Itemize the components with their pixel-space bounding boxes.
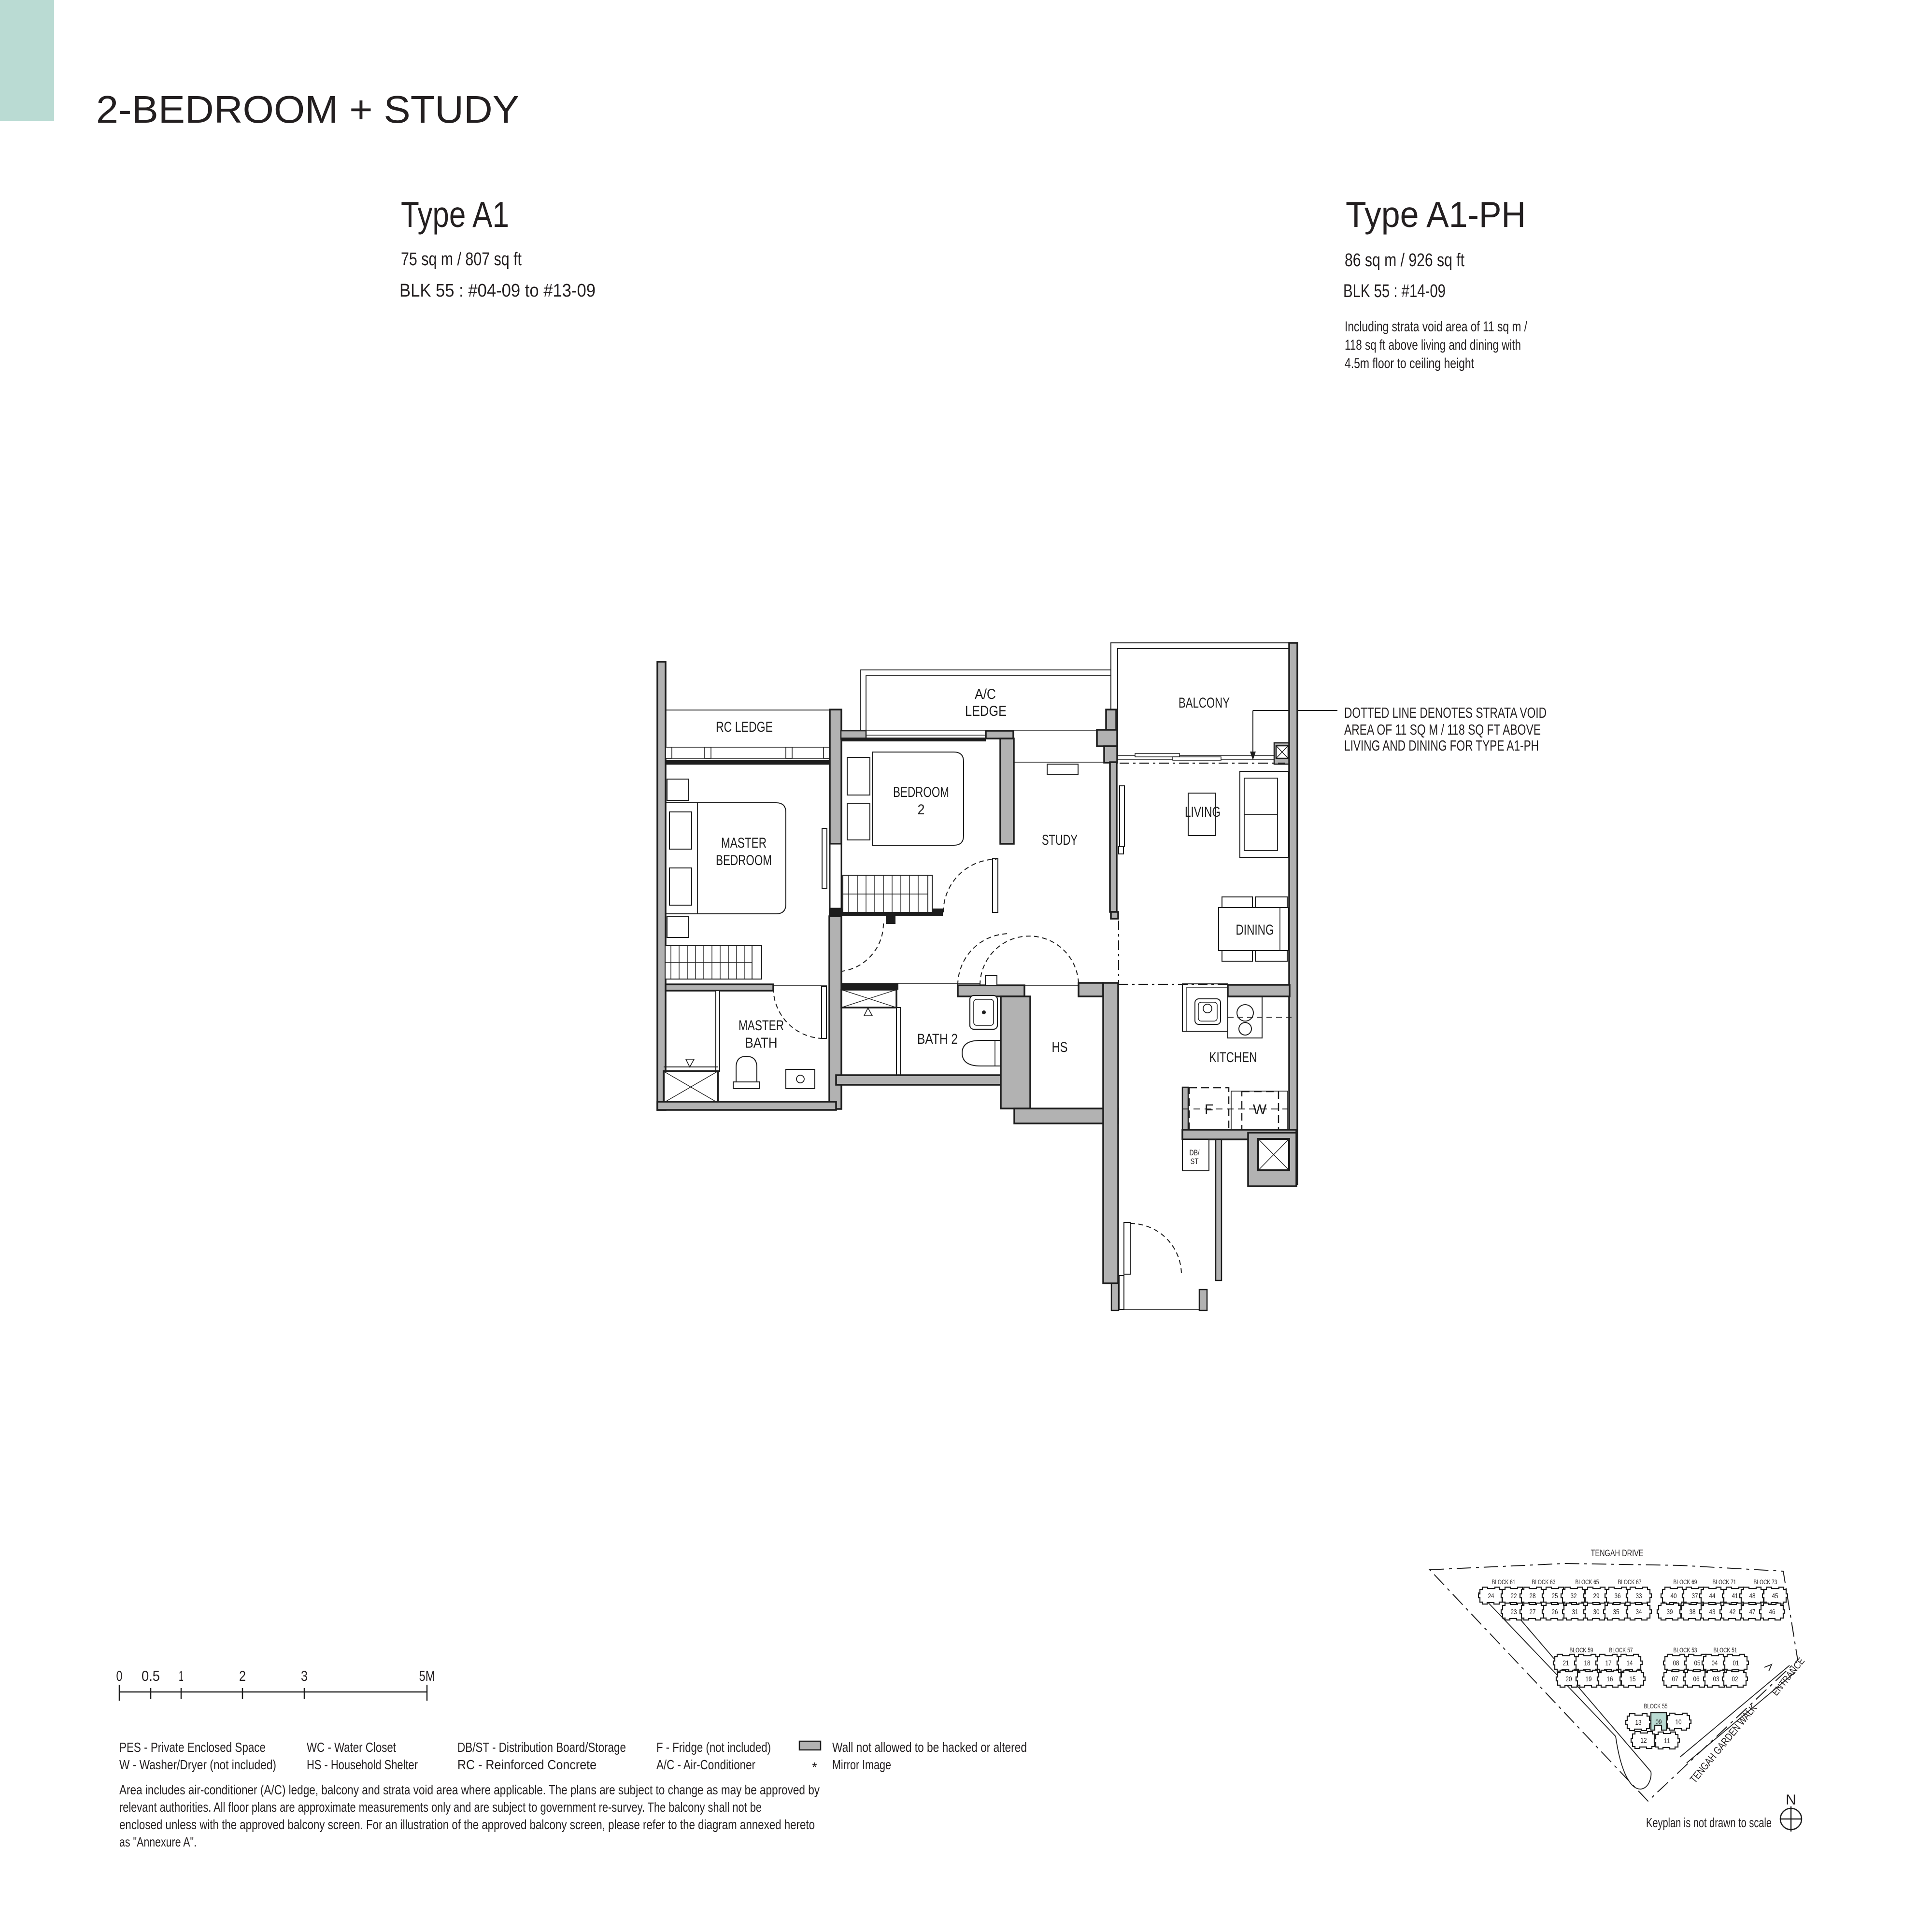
- svg-text:04: 04: [1712, 1659, 1718, 1667]
- svg-text:33: 33: [1636, 1592, 1642, 1600]
- svg-text:BATH: BATH: [745, 1035, 778, 1051]
- svg-text:21: 21: [1563, 1659, 1569, 1667]
- svg-text:75 sq m / 807 sq ft: 75 sq m / 807 sq ft: [401, 249, 522, 270]
- svg-text:as "Annexure A".: as "Annexure A".: [119, 1834, 197, 1849]
- svg-text:18: 18: [1584, 1659, 1591, 1667]
- svg-text:HS - Household Shelter: HS - Household Shelter: [307, 1757, 418, 1772]
- svg-text:PES - Private Enclosed Space: PES - Private Enclosed Space: [119, 1740, 266, 1755]
- svg-text:MASTER: MASTER: [721, 835, 767, 851]
- svg-text:08: 08: [1673, 1659, 1679, 1667]
- svg-text:27: 27: [1530, 1608, 1536, 1616]
- svg-text:42: 42: [1730, 1608, 1736, 1616]
- svg-text:40: 40: [1671, 1592, 1677, 1600]
- svg-text:F: F: [1205, 1102, 1213, 1118]
- svg-text:A/C - Air-Conditioner: A/C - Air-Conditioner: [656, 1757, 755, 1772]
- svg-text:48: 48: [1749, 1592, 1756, 1600]
- svg-text:10: 10: [1676, 1718, 1682, 1726]
- svg-text:BALCONY: BALCONY: [1179, 695, 1230, 711]
- svg-text:45: 45: [1772, 1592, 1778, 1600]
- svg-text:W: W: [1253, 1102, 1267, 1118]
- svg-text:BLOCK 59: BLOCK 59: [1570, 1646, 1593, 1654]
- svg-text:44: 44: [1709, 1592, 1716, 1600]
- svg-text:enclosed unless with the appro: enclosed unless with the approved balcon…: [119, 1817, 815, 1832]
- svg-text:LIVING: LIVING: [1185, 804, 1221, 820]
- svg-text:BLOCK 71: BLOCK 71: [1713, 1578, 1736, 1586]
- svg-text:TENGAH GARDEN WALK: TENGAH GARDEN WALK: [1688, 1702, 1760, 1785]
- svg-text:22: 22: [1511, 1592, 1517, 1600]
- svg-text:2: 2: [239, 1668, 246, 1684]
- svg-text:BLOCK 53: BLOCK 53: [1674, 1646, 1697, 1654]
- svg-text:32: 32: [1571, 1592, 1577, 1600]
- svg-text:F - Fridge (not included): F - Fridge (not included): [656, 1740, 771, 1755]
- svg-text:4.5m floor to ceiling height: 4.5m floor to ceiling height: [1345, 355, 1475, 371]
- svg-text:BLOCK 55: BLOCK 55: [1644, 1702, 1668, 1710]
- svg-text:BEDROOM: BEDROOM: [716, 852, 772, 868]
- svg-text:KITCHEN: KITCHEN: [1209, 1050, 1257, 1065]
- svg-text:Type A1: Type A1: [401, 194, 509, 235]
- svg-text:Type A1-PH: Type A1-PH: [1346, 194, 1526, 235]
- svg-text:BLK 55 : #14-09: BLK 55 : #14-09: [1343, 281, 1446, 301]
- svg-text:BLOCK 63: BLOCK 63: [1532, 1578, 1556, 1586]
- svg-text:06: 06: [1693, 1675, 1700, 1683]
- svg-text:46: 46: [1769, 1608, 1776, 1616]
- svg-text:Including strata void area of: Including strata void area of 11 sq m /: [1345, 319, 1528, 335]
- svg-text:BEDROOM: BEDROOM: [893, 784, 949, 800]
- svg-text:0.5: 0.5: [142, 1668, 160, 1684]
- svg-text:16: 16: [1607, 1675, 1613, 1683]
- svg-text:17: 17: [1605, 1659, 1612, 1667]
- svg-text:BLOCK 57: BLOCK 57: [1609, 1646, 1633, 1654]
- svg-text:29: 29: [1593, 1592, 1600, 1600]
- svg-text:DOTTED LINE DENOTES STRATA VOI: DOTTED LINE DENOTES STRATA VOID: [1344, 704, 1547, 721]
- svg-text:30: 30: [1593, 1608, 1600, 1616]
- svg-text:*: *: [812, 1760, 817, 1775]
- svg-text:HS: HS: [1052, 1039, 1068, 1055]
- svg-text:W - Washer/Dryer (not included: W - Washer/Dryer (not included): [119, 1757, 276, 1772]
- svg-text:2-BEDROOM + STUDY: 2-BEDROOM + STUDY: [96, 88, 519, 131]
- svg-text:LIVING AND DINING FOR TYPE A1-: LIVING AND DINING FOR TYPE A1-PH: [1344, 737, 1539, 754]
- svg-text:31: 31: [1572, 1608, 1578, 1616]
- svg-text:Area includes air-conditioner: Area includes air-conditioner (A/C) ledg…: [119, 1782, 820, 1797]
- svg-text:BLOCK 67: BLOCK 67: [1618, 1578, 1642, 1586]
- svg-text:AREA OF 11 SQ M / 118 SQ FT AB: AREA OF 11 SQ M / 118 SQ FT ABOVE: [1344, 721, 1541, 738]
- svg-text:BATH 2: BATH 2: [917, 1031, 958, 1047]
- svg-text:0: 0: [116, 1668, 123, 1684]
- svg-text:RC LEDGE: RC LEDGE: [716, 719, 773, 735]
- svg-text:ST: ST: [1191, 1157, 1199, 1166]
- svg-text:LEDGE: LEDGE: [965, 703, 1007, 719]
- svg-text:28: 28: [1530, 1592, 1536, 1600]
- svg-text:1: 1: [179, 1668, 184, 1684]
- svg-text:WC - Water Closet: WC - Water Closet: [307, 1740, 396, 1755]
- svg-text:Mirror Image: Mirror Image: [832, 1757, 891, 1772]
- svg-text:12: 12: [1641, 1736, 1647, 1745]
- svg-text:TENGAH DRIVE: TENGAH DRIVE: [1591, 1548, 1644, 1559]
- svg-text:34: 34: [1636, 1608, 1642, 1616]
- svg-text:BLOCK 65: BLOCK 65: [1576, 1578, 1599, 1586]
- svg-text:35: 35: [1613, 1608, 1619, 1616]
- svg-text:DINING: DINING: [1236, 922, 1274, 938]
- svg-text:86 sq m / 926 sq ft: 86 sq m / 926 sq ft: [1345, 250, 1464, 270]
- svg-text:A/C: A/C: [975, 686, 996, 702]
- svg-text:DB/: DB/: [1190, 1148, 1200, 1157]
- svg-text:24: 24: [1488, 1592, 1494, 1600]
- svg-text:25: 25: [1552, 1592, 1558, 1600]
- svg-text:13: 13: [1635, 1719, 1642, 1727]
- svg-text:2: 2: [918, 802, 925, 818]
- svg-text:STUDY: STUDY: [1042, 832, 1078, 848]
- svg-text:BLOCK 51: BLOCK 51: [1714, 1646, 1737, 1654]
- svg-text:01: 01: [1733, 1659, 1739, 1667]
- svg-text:19: 19: [1586, 1675, 1592, 1683]
- svg-text:38: 38: [1690, 1608, 1696, 1616]
- svg-text:3: 3: [301, 1668, 308, 1684]
- svg-text:BLK 55 : #04-09 to #13-09: BLK 55 : #04-09 to #13-09: [399, 281, 596, 301]
- svg-text:Wall not allowed to be hacked: Wall not allowed to be hacked or altered: [832, 1740, 1027, 1755]
- svg-text:20: 20: [1566, 1675, 1572, 1683]
- svg-text:41: 41: [1732, 1592, 1738, 1600]
- svg-text:118 sq ft above living and din: 118 sq ft above living and dining with: [1345, 337, 1521, 353]
- svg-text:DB/ST - Distribution Board/Sto: DB/ST - Distribution Board/Storage: [457, 1740, 626, 1755]
- svg-text:47: 47: [1749, 1608, 1756, 1616]
- svg-text:07: 07: [1672, 1675, 1678, 1683]
- svg-text:5M: 5M: [419, 1668, 435, 1684]
- svg-text:RC - Reinforced Concrete: RC - Reinforced Concrete: [457, 1757, 597, 1772]
- svg-text:37: 37: [1692, 1592, 1698, 1600]
- svg-text:43: 43: [1709, 1608, 1716, 1616]
- svg-text:36: 36: [1615, 1592, 1621, 1600]
- svg-text:11: 11: [1664, 1737, 1670, 1745]
- svg-text:BLOCK 69: BLOCK 69: [1674, 1578, 1697, 1586]
- svg-text:23: 23: [1511, 1608, 1517, 1616]
- svg-text:N: N: [1786, 1792, 1796, 1808]
- svg-text:39: 39: [1667, 1608, 1673, 1616]
- svg-text:26: 26: [1552, 1608, 1558, 1616]
- svg-text:03: 03: [1713, 1675, 1719, 1683]
- svg-text:02: 02: [1732, 1675, 1738, 1683]
- svg-text:BLOCK 61: BLOCK 61: [1492, 1578, 1516, 1586]
- svg-text:09: 09: [1656, 1718, 1662, 1726]
- svg-text:15: 15: [1630, 1675, 1636, 1683]
- svg-text:Keyplan is not drawn to scale: Keyplan is not drawn to scale: [1646, 1815, 1772, 1830]
- svg-text:relevant authorities. All floo: relevant authorities. All floor plans ar…: [119, 1800, 762, 1815]
- svg-text:05: 05: [1694, 1659, 1701, 1667]
- svg-text:MASTER: MASTER: [739, 1018, 784, 1034]
- svg-text:14: 14: [1627, 1659, 1633, 1667]
- svg-text:BLOCK 73: BLOCK 73: [1754, 1578, 1777, 1586]
